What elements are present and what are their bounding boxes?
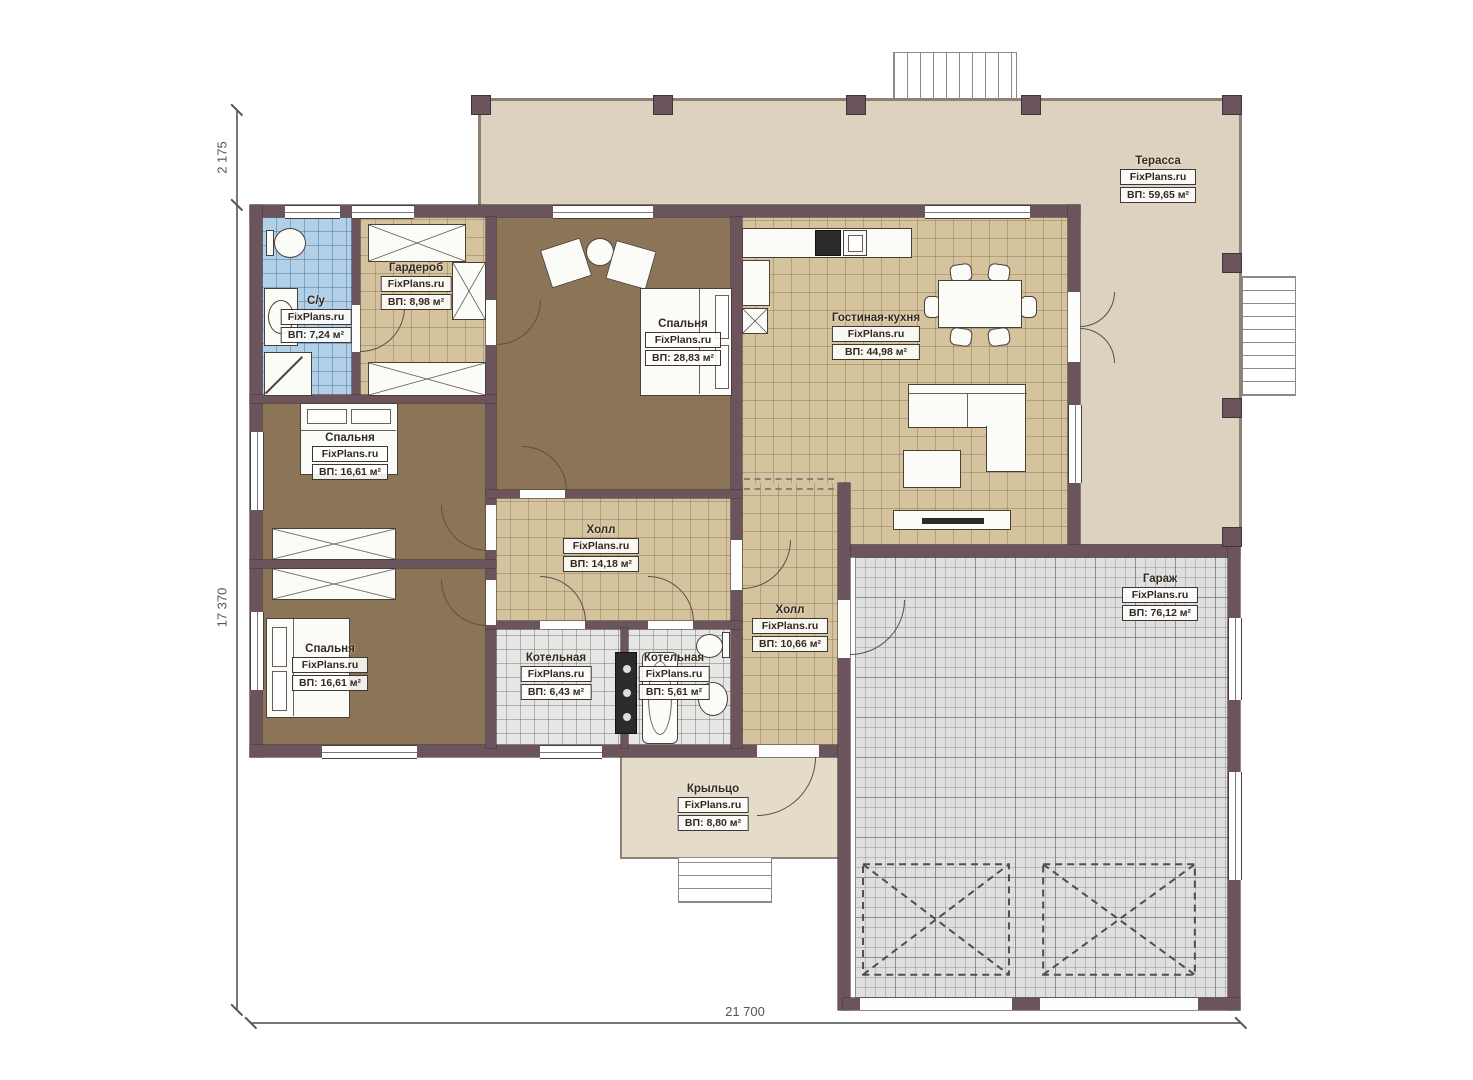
terrace-pillar xyxy=(1222,95,1242,115)
room-name-label: Гостиная-кухня xyxy=(832,312,920,324)
fixplans-watermark: FixPlans.ru xyxy=(563,538,639,554)
floor-plan-canvas: Терасса FixPlans.ru ВП: 59,65 м² С/у Fix… xyxy=(0,0,1473,1080)
room-name-label: Спальня xyxy=(292,643,368,655)
garage-gate-opening xyxy=(1040,998,1198,1010)
appliance-icon xyxy=(742,308,768,334)
boiler-dot xyxy=(623,665,631,673)
room-name-label: Холл xyxy=(752,604,828,616)
room-label-boiler-2: Котельная FixPlans.ru ВП: 5,61 м² xyxy=(639,652,710,700)
fridge-icon xyxy=(742,260,770,306)
sofa-seam xyxy=(967,393,968,427)
terrace-stairs-top xyxy=(893,52,1017,100)
wall-garage-left xyxy=(838,483,850,1010)
room-name-label: Спальня xyxy=(312,432,388,444)
room-name-label: С/у xyxy=(281,295,352,307)
room-area-label: ВП: 8,98 м² xyxy=(381,294,452,310)
wall-garage-top xyxy=(843,545,1240,557)
room-area-label: ВП: 28,83 м² xyxy=(645,350,721,366)
shower-icon xyxy=(264,352,312,396)
window xyxy=(925,205,1030,219)
room-label-boiler-1: Котельная FixPlans.ru ВП: 6,43 м² xyxy=(521,652,592,700)
window xyxy=(1068,405,1082,483)
wall-living-right xyxy=(1068,205,1080,545)
terrace-edge-right xyxy=(1239,98,1242,547)
wall-bath-row-bottom xyxy=(250,395,496,403)
room-area-label: ВП: 16,61 м² xyxy=(292,675,368,691)
room-label-porch: Крыльцо FixPlans.ru ВП: 8,80 м² xyxy=(678,783,749,831)
garage-gate-icon xyxy=(860,862,1012,977)
room-name-label: Котельная xyxy=(521,652,592,664)
room-name-label: Терасса xyxy=(1120,155,1196,167)
closet-icon xyxy=(368,362,486,396)
terrace-stairs-right xyxy=(1242,276,1296,396)
room-label-terrace: Терасса FixPlans.ru ВП: 59,65 м² xyxy=(1120,155,1196,203)
door-gap xyxy=(540,621,585,629)
fixplans-watermark: FixPlans.ru xyxy=(752,618,828,634)
terrace-pillar xyxy=(471,95,491,115)
fixplans-watermark: FixPlans.ru xyxy=(832,326,920,342)
entrance-door-gap xyxy=(757,745,819,757)
boiler-dot xyxy=(623,713,631,721)
room-label-garage: Гараж FixPlans.ru ВП: 76,12 м² xyxy=(1122,573,1198,621)
room-label-hall-entry: Холл FixPlans.ru ВП: 10,66 м² xyxy=(752,604,828,652)
toilet-tank-icon xyxy=(722,632,730,658)
door-gap xyxy=(486,580,496,625)
dimension-value-left: 17 370 xyxy=(215,569,230,647)
wall-living-left xyxy=(731,217,742,748)
terrace-pillar xyxy=(1222,527,1242,547)
room-area-label: ВП: 59,65 м² xyxy=(1120,187,1196,203)
fixplans-watermark: FixPlans.ru xyxy=(639,666,710,682)
tv-icon xyxy=(922,518,984,524)
window-garage xyxy=(1228,618,1242,700)
door-gap xyxy=(648,621,693,629)
fixplans-watermark: FixPlans.ru xyxy=(281,309,352,325)
room-area-label: ВП: 5,61 м² xyxy=(639,684,710,700)
blanket-line xyxy=(301,430,396,431)
window xyxy=(553,205,653,219)
living-hall-opening xyxy=(744,478,834,490)
door-gap xyxy=(352,305,360,352)
room-name-label: Спальня xyxy=(645,318,721,330)
kitchen-sink-icon xyxy=(843,230,867,256)
room-name-label: Гардероб xyxy=(381,262,452,274)
shower-diagonal xyxy=(265,356,303,394)
boiler-unit-icon xyxy=(615,652,637,734)
room-label-bedroom-mid: Спальня FixPlans.ru ВП: 16,61 м² xyxy=(312,432,388,480)
fixplans-watermark: FixPlans.ru xyxy=(1120,169,1196,185)
closet-icon xyxy=(368,224,466,262)
closet-icon xyxy=(452,262,486,320)
room-label-bedroom-master: Спальня FixPlans.ru ВП: 28,83 м² xyxy=(645,318,721,366)
fixplans-watermark: FixPlans.ru xyxy=(678,797,749,813)
chair-icon xyxy=(1020,296,1037,318)
room-label-wardrobe: Гардероб FixPlans.ru ВП: 8,98 м² xyxy=(381,262,452,310)
tv-stand-icon xyxy=(893,510,1011,530)
porch-steps xyxy=(678,857,772,903)
sink-basin xyxy=(848,235,863,252)
terrace-pillar xyxy=(1222,253,1242,273)
terrace-door-gap xyxy=(1068,292,1080,362)
fixplans-watermark: FixPlans.ru xyxy=(292,657,368,673)
dimension-value-top-left: 2 175 xyxy=(215,126,230,190)
window xyxy=(285,205,340,219)
room-name-label: Гараж xyxy=(1122,573,1198,585)
window-garage xyxy=(1228,772,1242,880)
dimension-value-bottom: 21 700 xyxy=(700,1004,790,1019)
sofa-chaise-icon xyxy=(986,426,1026,472)
sofa-icon xyxy=(908,384,1026,428)
dining-table-icon xyxy=(938,280,1022,328)
garage-door-gap xyxy=(838,600,850,658)
room-area-label: ВП: 6,43 м² xyxy=(521,684,592,700)
pillow-icon xyxy=(307,409,347,424)
terrace-pillar xyxy=(1021,95,1041,115)
stove-icon xyxy=(815,230,841,256)
dimension-line xyxy=(250,1022,1240,1024)
room-area-label: ВП: 44,98 м² xyxy=(832,344,920,360)
coffee-table-icon xyxy=(903,450,961,488)
chair-icon xyxy=(949,327,973,348)
window xyxy=(352,205,414,219)
terrace-pillar xyxy=(1222,398,1242,418)
fixplans-watermark: FixPlans.ru xyxy=(521,666,592,682)
wall-bedroom-divider xyxy=(250,560,496,568)
fixplans-watermark: FixPlans.ru xyxy=(312,446,388,462)
boiler-dot xyxy=(623,689,631,697)
room-area-label: ВП: 14,18 м² xyxy=(563,556,639,572)
garage-gate-opening xyxy=(860,998,1012,1010)
terrace-pillar xyxy=(653,95,673,115)
room-area-label: ВП: 7,24 м² xyxy=(281,327,352,343)
closet-icon xyxy=(272,528,396,560)
room-label-bathroom: С/у FixPlans.ru ВП: 7,24 м² xyxy=(281,295,352,343)
room-name-label: Холл xyxy=(563,524,639,536)
pillow-icon xyxy=(351,409,391,424)
room-area-label: ВП: 8,80 м² xyxy=(678,815,749,831)
fixplans-watermark: FixPlans.ru xyxy=(1122,587,1198,603)
room-name-label: Котельная xyxy=(639,652,710,664)
dimension-line xyxy=(236,110,238,206)
pillow-icon xyxy=(272,627,287,667)
window xyxy=(250,612,264,690)
sofa-back-line xyxy=(909,393,1027,394)
room-area-label: ВП: 76,12 м² xyxy=(1122,605,1198,621)
wall-bedrooms-right xyxy=(486,217,496,748)
pillow-icon xyxy=(272,671,287,711)
fixplans-watermark: FixPlans.ru xyxy=(645,332,721,348)
wall-hall-bottom xyxy=(486,621,742,629)
window xyxy=(250,432,264,510)
room-label-bedroom-lower: Спальня FixPlans.ru ВП: 16,61 м² xyxy=(292,643,368,691)
toilet-icon xyxy=(274,228,306,258)
door-gap xyxy=(486,505,496,550)
terrace-pillar xyxy=(846,95,866,115)
toilet-tank-icon xyxy=(266,230,274,256)
dimension-line xyxy=(236,206,238,1010)
room-label-living-kitchen: Гостиная-кухня FixPlans.ru ВП: 44,98 м² xyxy=(832,312,920,360)
fixplans-watermark: FixPlans.ru xyxy=(381,276,452,292)
door-gap xyxy=(731,540,742,590)
room-name-label: Крыльцо xyxy=(678,783,749,795)
door-gap xyxy=(486,300,496,345)
room-area-label: ВП: 10,66 м² xyxy=(752,636,828,652)
window xyxy=(540,745,602,759)
door-gap xyxy=(520,490,565,498)
room-terrace-floor-right xyxy=(1080,205,1240,545)
room-label-hall-main: Холл FixPlans.ru ВП: 14,18 м² xyxy=(563,524,639,572)
garage-gate-icon xyxy=(1040,862,1198,977)
window xyxy=(322,745,417,759)
room-area-label: ВП: 16,61 м² xyxy=(312,464,388,480)
closet-icon xyxy=(272,568,396,600)
chair-icon xyxy=(987,327,1011,348)
